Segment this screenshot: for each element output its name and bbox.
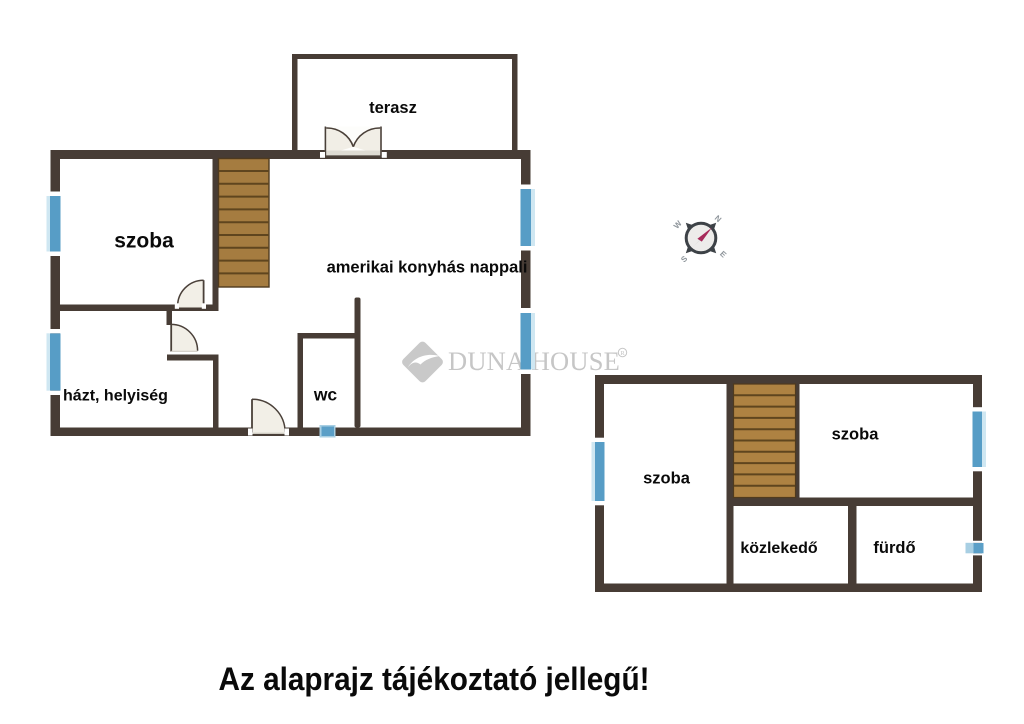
svg-text:R: R	[620, 350, 625, 357]
svg-text:szoba: szoba	[643, 470, 691, 488]
svg-text:szoba: szoba	[832, 426, 880, 444]
svg-text:Az alaprajz tájékoztató jelleg: Az alaprajz tájékoztató jellegű!	[219, 661, 650, 697]
svg-text:terasz: terasz	[369, 99, 417, 117]
svg-text:amerikai konyhás nappali: amerikai konyhás nappali	[327, 259, 528, 277]
svg-text:szoba: szoba	[114, 230, 174, 253]
svg-text:közlekedő: közlekedő	[740, 540, 818, 557]
svg-text:fürdő: fürdő	[873, 539, 915, 557]
svg-text:wc: wc	[313, 385, 338, 405]
svg-text:házt, helyiség: házt, helyiség	[63, 388, 168, 405]
